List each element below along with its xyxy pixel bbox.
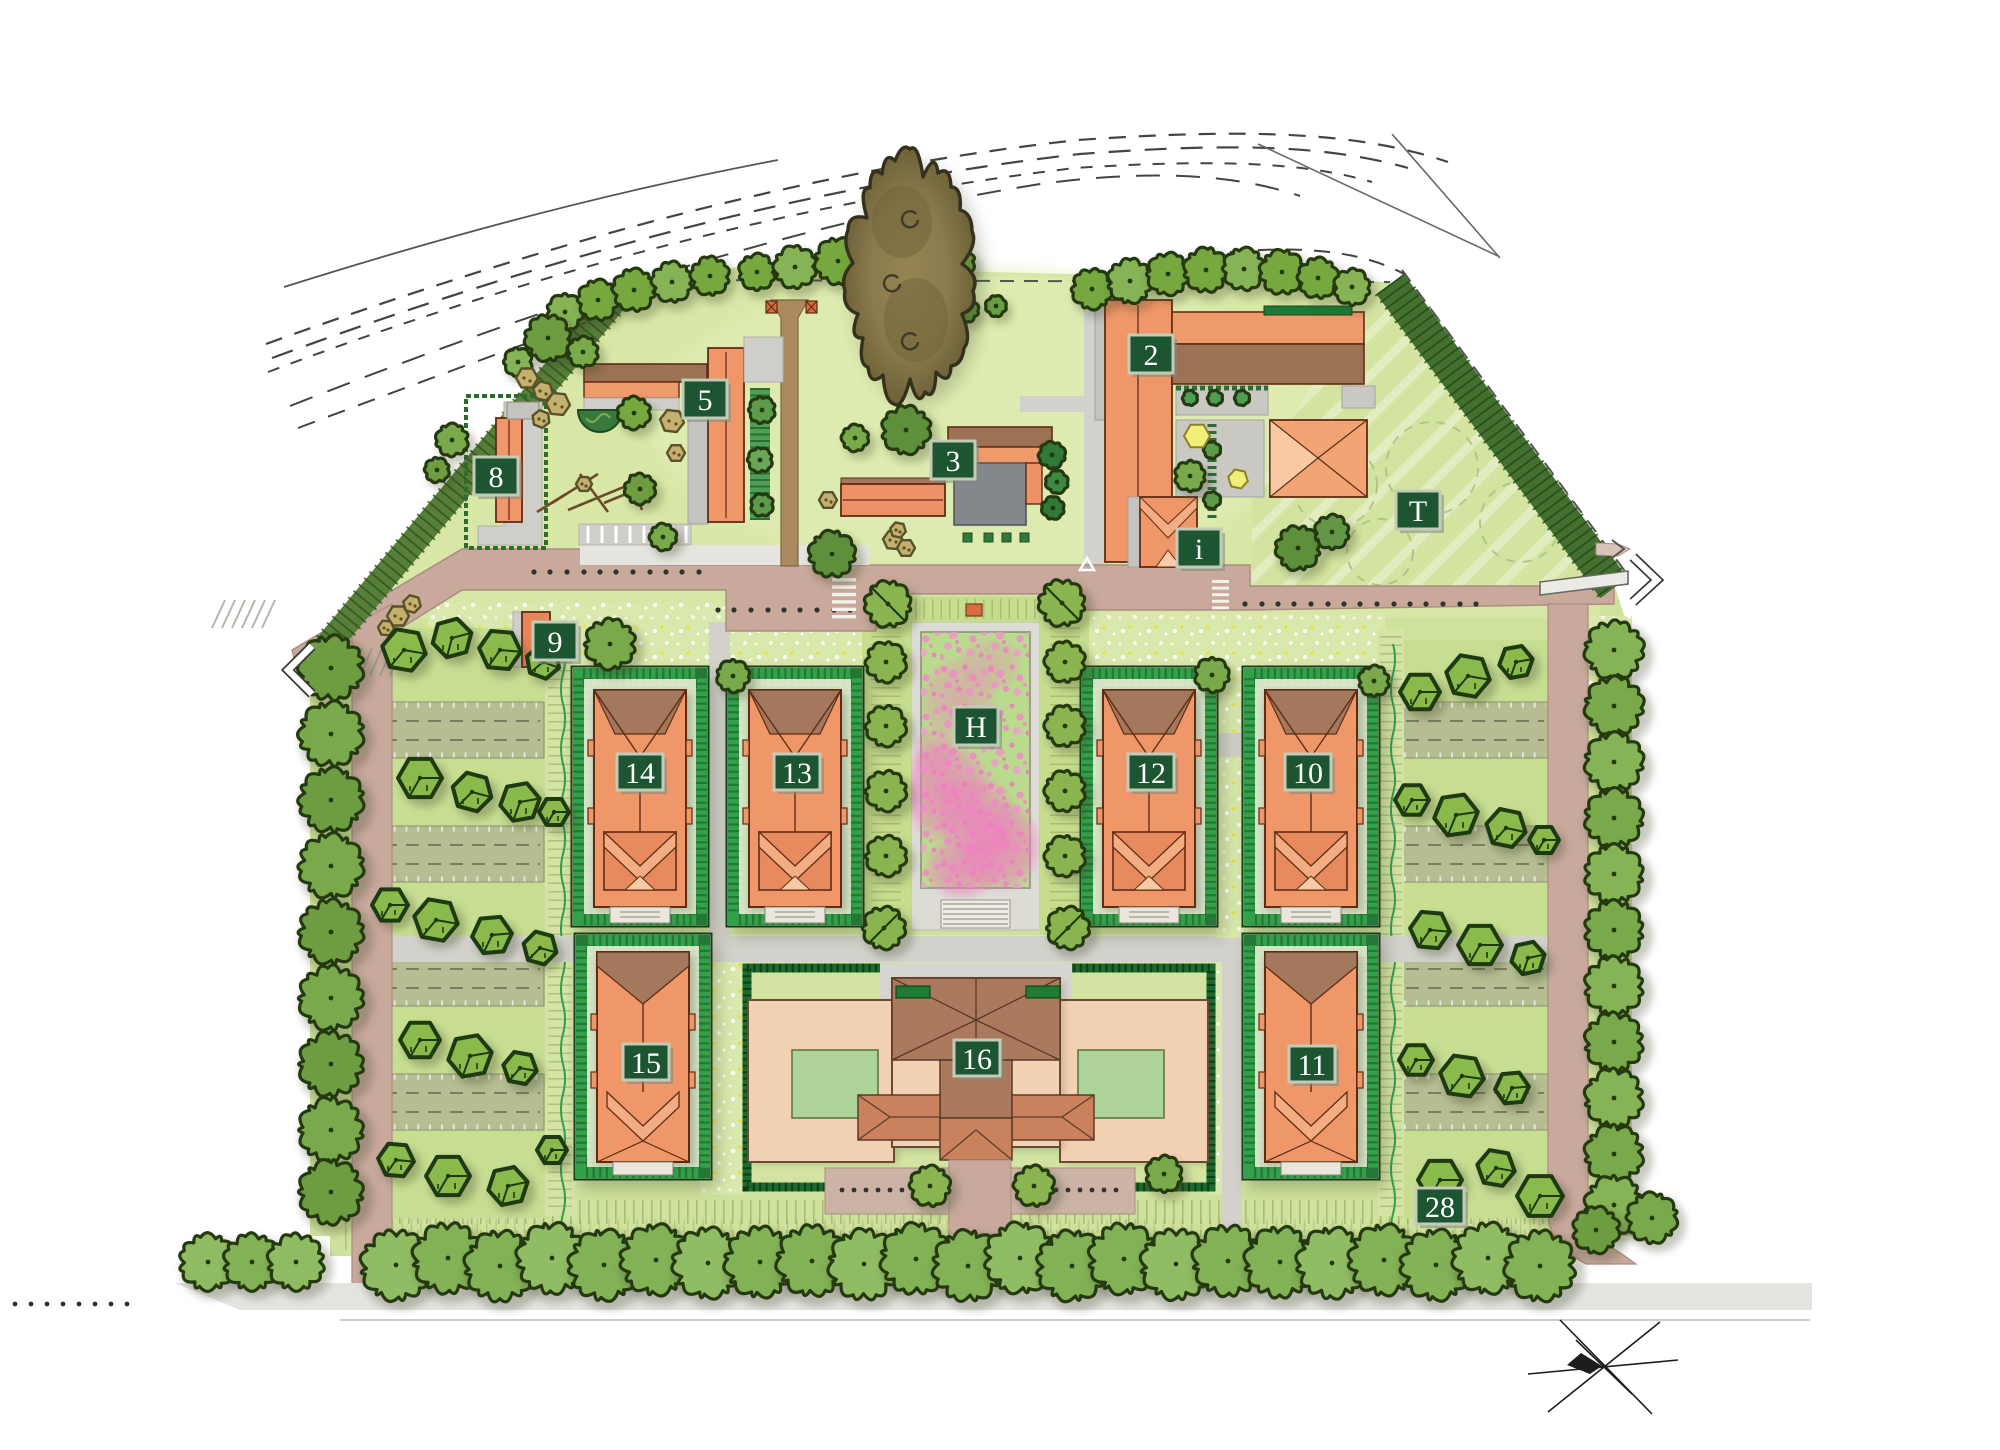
svg-text:T: T: [1409, 495, 1427, 528]
svg-text:10: 10: [1293, 757, 1323, 790]
svg-text:28: 28: [1425, 1191, 1455, 1224]
svg-text:14: 14: [625, 757, 655, 790]
svg-text:11: 11: [1298, 1049, 1327, 1082]
svg-text:9: 9: [548, 626, 563, 659]
svg-text:H: H: [965, 711, 987, 744]
svg-text:5: 5: [698, 384, 713, 417]
svg-text:3: 3: [946, 445, 961, 478]
svg-text:12: 12: [1136, 757, 1166, 790]
svg-text:15: 15: [631, 1047, 661, 1080]
svg-text:2: 2: [1144, 339, 1159, 372]
svg-text:i: i: [1195, 533, 1203, 566]
svg-text:16: 16: [962, 1043, 992, 1076]
svg-text:13: 13: [782, 757, 812, 790]
svg-text:8: 8: [489, 461, 504, 494]
